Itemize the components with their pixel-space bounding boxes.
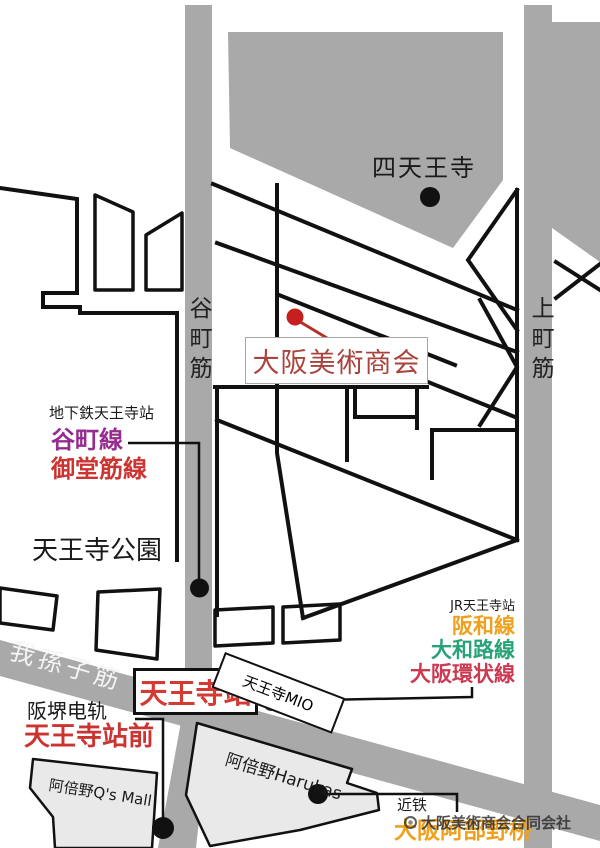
tram-company-label: 阪堺电轨: [27, 701, 107, 722]
tanimachi-suji-label: 谷町筋: [186, 296, 210, 386]
shitennoji-label: 四天王寺: [372, 156, 476, 181]
destination-label-box: 大阪美術商会: [245, 337, 428, 384]
tram-station-dot: [152, 817, 174, 839]
city-block: [215, 607, 273, 646]
city-block: [95, 195, 133, 290]
city-block: [283, 604, 340, 643]
subway-station-note: 地下鉄天王寺站: [49, 406, 154, 422]
city-block: [0, 588, 57, 630]
subway-station-dot: [190, 579, 209, 598]
street: [217, 243, 517, 352]
uemachi-suji-road: [524, 5, 552, 848]
subway-line-midosuji: 御堂筋線: [51, 457, 147, 482]
street: [355, 387, 417, 428]
destination-label: 大阪美術商会: [253, 341, 421, 380]
access-map: 四天王寺 谷町筋 上町筋 我孫子筋 大阪美術商会 地下鉄天王寺站 谷町線 御堂筋…: [0, 0, 600, 848]
watermark: 大阪美術商会合同会社: [404, 812, 571, 833]
watermark-logo-icon: [404, 816, 417, 829]
shitennoji-dot: [420, 187, 440, 207]
street: [277, 185, 303, 618]
street: [432, 430, 517, 478]
watermark-text: 大阪美術商会合同会社: [421, 812, 571, 833]
tram-station-label: 天王寺站前: [24, 724, 154, 751]
jr-line-hanwa: 阪和線: [452, 615, 515, 637]
city-block: [146, 213, 182, 290]
subway-line-tanimachi: 谷町線: [51, 428, 123, 453]
street: [217, 420, 517, 540]
uemachi-suji-label: 上町筋: [528, 296, 552, 386]
east-gray-area: [552, 22, 600, 262]
destination-marker-dot: [287, 309, 304, 326]
jr-line-yamatoji: 大和路線: [431, 639, 515, 661]
shitennoji-area: [228, 32, 503, 248]
street: [556, 262, 600, 298]
park-label: 天王寺公園: [32, 538, 162, 565]
city-block: [96, 589, 160, 659]
jr-station-note: JR天王寺站: [450, 600, 515, 614]
jr-line-loop: 大阪環状線: [410, 663, 515, 685]
